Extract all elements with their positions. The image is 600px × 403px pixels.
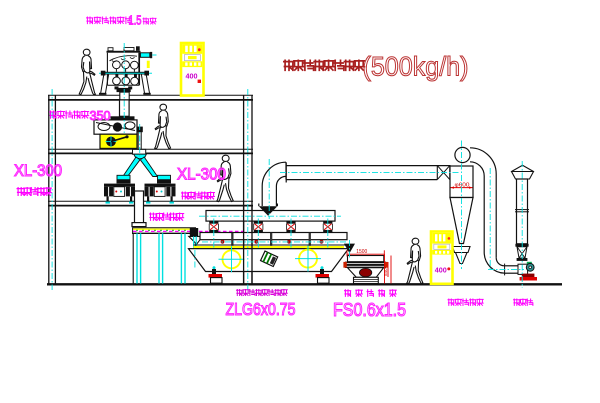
svg-text:400: 400	[186, 72, 198, 81]
svg-text:1500: 1500	[356, 249, 367, 255]
svg-text:φ600: φ600	[455, 182, 470, 188]
svg-text:400: 400	[435, 266, 447, 275]
svg-text:FS0.6x1.5: FS0.6x1.5	[333, 299, 406, 320]
svg-text:1.5: 1.5	[129, 14, 142, 28]
svg-text:(500kg/h): (500kg/h)	[363, 52, 469, 82]
svg-text:ZLG6x0.75: ZLG6x0.75	[226, 299, 296, 319]
svg-text:350: 350	[90, 108, 111, 123]
svg-text:540: 540	[383, 268, 388, 276]
svg-text:XL-300: XL-300	[14, 162, 62, 180]
svg-text:XL-300: XL-300	[177, 166, 226, 184]
